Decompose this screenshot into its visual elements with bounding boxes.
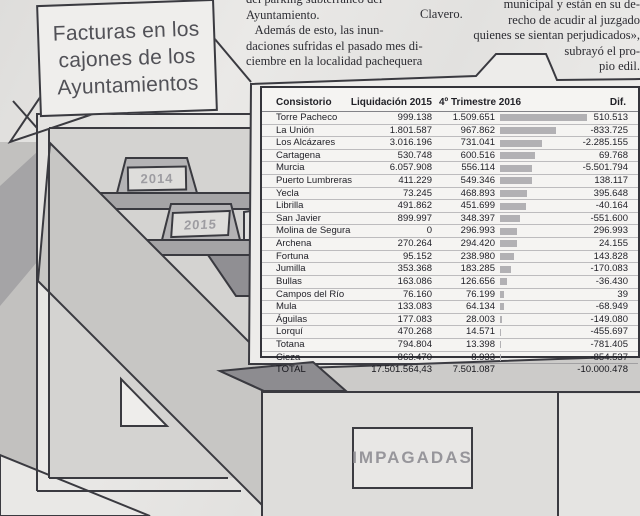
cell-dif: -455.697 bbox=[528, 326, 628, 337]
table-row: Bullas163.086126.656-36.430 bbox=[262, 276, 638, 289]
value-bar bbox=[500, 190, 527, 197]
drawer-label-impagadas: IMPAGADAS bbox=[352, 427, 473, 489]
table-row: Cieza863.4708.933-854.537 bbox=[262, 352, 638, 365]
value-bar bbox=[500, 278, 507, 285]
cell-dif: -5.501.794 bbox=[528, 162, 628, 173]
table-row: Jumilla353.368183.285-170.083 bbox=[262, 263, 638, 276]
cell-4-trimestre-2016: 64.134 bbox=[402, 301, 495, 312]
value-bar bbox=[500, 127, 556, 134]
cell-dif: 138.117 bbox=[528, 175, 628, 186]
newspaper-clipping: del parking subterráneo delAyuntamiento.… bbox=[0, 0, 640, 516]
article-line: subrayó el pro- bbox=[466, 44, 640, 60]
value-bar bbox=[500, 240, 517, 247]
value-bar bbox=[500, 152, 535, 159]
table-row: Cartagena530.748600.51669.768 bbox=[262, 150, 638, 163]
cell-dif: -854.537 bbox=[528, 352, 628, 363]
cell-dif: -10.000.478 bbox=[528, 364, 628, 375]
table-row: Torre Pacheco999.1381.509.651510.513 bbox=[262, 112, 638, 125]
article-line: municipal y están en su de- bbox=[466, 0, 640, 13]
value-bar bbox=[500, 114, 587, 121]
cell-4-trimestre-2016: 7.501.087 bbox=[402, 364, 495, 375]
article-text-right: municipal y están en su de-recho de acud… bbox=[466, 0, 640, 75]
bottom-drawer-side bbox=[559, 394, 640, 516]
value-bar bbox=[500, 165, 532, 172]
table-header-row: Consistorio Liquidación 2015 4º Trimestr… bbox=[262, 88, 638, 112]
cell-4-trimestre-2016: 294.420 bbox=[402, 238, 495, 249]
table-row: Molina de Segura0296.993296.993 bbox=[262, 225, 638, 238]
table-row: Totana794.80413.398-781.405 bbox=[262, 339, 638, 352]
cell-dif: -551.600 bbox=[528, 213, 628, 224]
cell-4-trimestre-2016: 348.397 bbox=[402, 213, 495, 224]
cell-4-trimestre-2016: 126.656 bbox=[402, 276, 495, 287]
table-body: Torre Pacheco999.1381.509.651510.513La U… bbox=[262, 112, 638, 376]
article-line: pio edil. bbox=[466, 59, 640, 75]
infographic-title-card: Facturas en los cajones de los Ayuntamie… bbox=[36, 0, 218, 117]
article-byline: Clavero. bbox=[420, 7, 463, 23]
cell-dif: -149.080 bbox=[528, 314, 628, 325]
cell-4-trimestre-2016: 28.003 bbox=[402, 314, 495, 325]
value-bar bbox=[500, 228, 517, 235]
cell-dif: -68.949 bbox=[528, 301, 628, 312]
value-bar bbox=[500, 203, 526, 210]
value-bar bbox=[500, 140, 542, 147]
table-row: San Javier899.997348.397-551.600 bbox=[262, 213, 638, 226]
article-line: daciones sufridas el pasado mes di- bbox=[246, 39, 458, 55]
cell-4-trimestre-2016: 731.041 bbox=[402, 137, 495, 148]
cell-dif: 24.155 bbox=[528, 238, 628, 249]
value-bar bbox=[500, 341, 501, 348]
table-row: Águilas177.08328.003-149.080 bbox=[262, 314, 638, 327]
cell-4-trimestre-2016: 556.114 bbox=[402, 162, 495, 173]
header-4-trimestre-2016: 4º Trimestre 2016 bbox=[439, 97, 521, 108]
cell-dif: -40.164 bbox=[528, 200, 628, 211]
value-bar bbox=[500, 354, 501, 361]
table-row: La Unión1.801.587967.862-833.725 bbox=[262, 125, 638, 138]
cell-dif: 395.648 bbox=[528, 188, 628, 199]
table-row: Puerto Lumbreras411.229549.346138.117 bbox=[262, 175, 638, 188]
title-line-3: Ayuntamientos bbox=[41, 68, 216, 101]
value-bar bbox=[500, 329, 501, 336]
cell-dif: 69.768 bbox=[528, 150, 628, 161]
cell-4-trimestre-2016: 549.346 bbox=[402, 175, 495, 186]
cell-dif: -170.083 bbox=[528, 263, 628, 274]
cell-4-trimestre-2016: 600.516 bbox=[402, 150, 495, 161]
header-liquidacion-2015: Liquidación 2015 bbox=[322, 97, 432, 108]
table-row: Librilla491.862451.699-40.164 bbox=[262, 200, 638, 213]
table-row: Murcia6.057.908556.114-5.501.794 bbox=[262, 162, 638, 175]
table-row: Campos del Río76.16076.19939 bbox=[262, 289, 638, 302]
cell-4-trimestre-2016: 13.398 bbox=[402, 339, 495, 350]
value-bar bbox=[500, 215, 520, 222]
article-line: recho de acudir al juzgado bbox=[466, 13, 640, 29]
value-bar bbox=[500, 291, 504, 298]
folder-tab-2014-label: 2014 bbox=[127, 165, 187, 191]
value-bar bbox=[500, 177, 532, 184]
cell-dif: -2.285.155 bbox=[528, 137, 628, 148]
cell-4-trimestre-2016: 468.893 bbox=[402, 188, 495, 199]
table-row: Fortuna95.152238.980143.828 bbox=[262, 251, 638, 264]
cell-4-trimestre-2016: 296.993 bbox=[402, 225, 495, 236]
cell-dif: 39 bbox=[528, 289, 628, 300]
cell-4-trimestre-2016: 8.933 bbox=[402, 352, 495, 363]
value-bar bbox=[500, 316, 502, 323]
article-line: quienes se sientan perjudicados», bbox=[466, 28, 640, 44]
table-total-row: TOTAL17.501.564,437.501.087-10.000.478 bbox=[262, 364, 638, 376]
table-row: Archena270.264294.42024.155 bbox=[262, 238, 638, 251]
article-line: ciembre en la localidad pachequera bbox=[246, 54, 458, 70]
cell-4-trimestre-2016: 1.509.651 bbox=[402, 112, 495, 123]
cell-4-trimestre-2016: 183.285 bbox=[402, 263, 495, 274]
cell-4-trimestre-2016: 76.199 bbox=[402, 289, 495, 300]
folder-tab-2015-label: 2015 bbox=[170, 210, 231, 238]
value-bar bbox=[500, 266, 511, 273]
cell-dif: 143.828 bbox=[528, 251, 628, 262]
header-dif: Dif. bbox=[528, 97, 626, 108]
value-bar bbox=[500, 253, 514, 260]
cell-4-trimestre-2016: 238.980 bbox=[402, 251, 495, 262]
table-row: Lorquí470.26814.571-455.697 bbox=[262, 326, 638, 339]
value-bar bbox=[500, 303, 504, 310]
cell-dif: -781.405 bbox=[528, 339, 628, 350]
municipal-invoices-table: Consistorio Liquidación 2015 4º Trimestr… bbox=[260, 86, 640, 358]
cell-dif: -36.430 bbox=[528, 276, 628, 287]
folder-2015-band bbox=[148, 240, 258, 255]
table-row: Mula133.08364.134-68.949 bbox=[262, 301, 638, 314]
article-line: Además de esto, las inun- bbox=[246, 23, 458, 39]
table-row: Los Alcázares3.016.196731.041-2.285.155 bbox=[262, 137, 638, 150]
cell-4-trimestre-2016: 967.862 bbox=[402, 125, 495, 136]
cell-4-trimestre-2016: 14.571 bbox=[402, 326, 495, 337]
table-row: Yecla73.245468.893395.648 bbox=[262, 188, 638, 201]
cell-4-trimestre-2016: 451.699 bbox=[402, 200, 495, 211]
cell-dif: 296.993 bbox=[528, 225, 628, 236]
